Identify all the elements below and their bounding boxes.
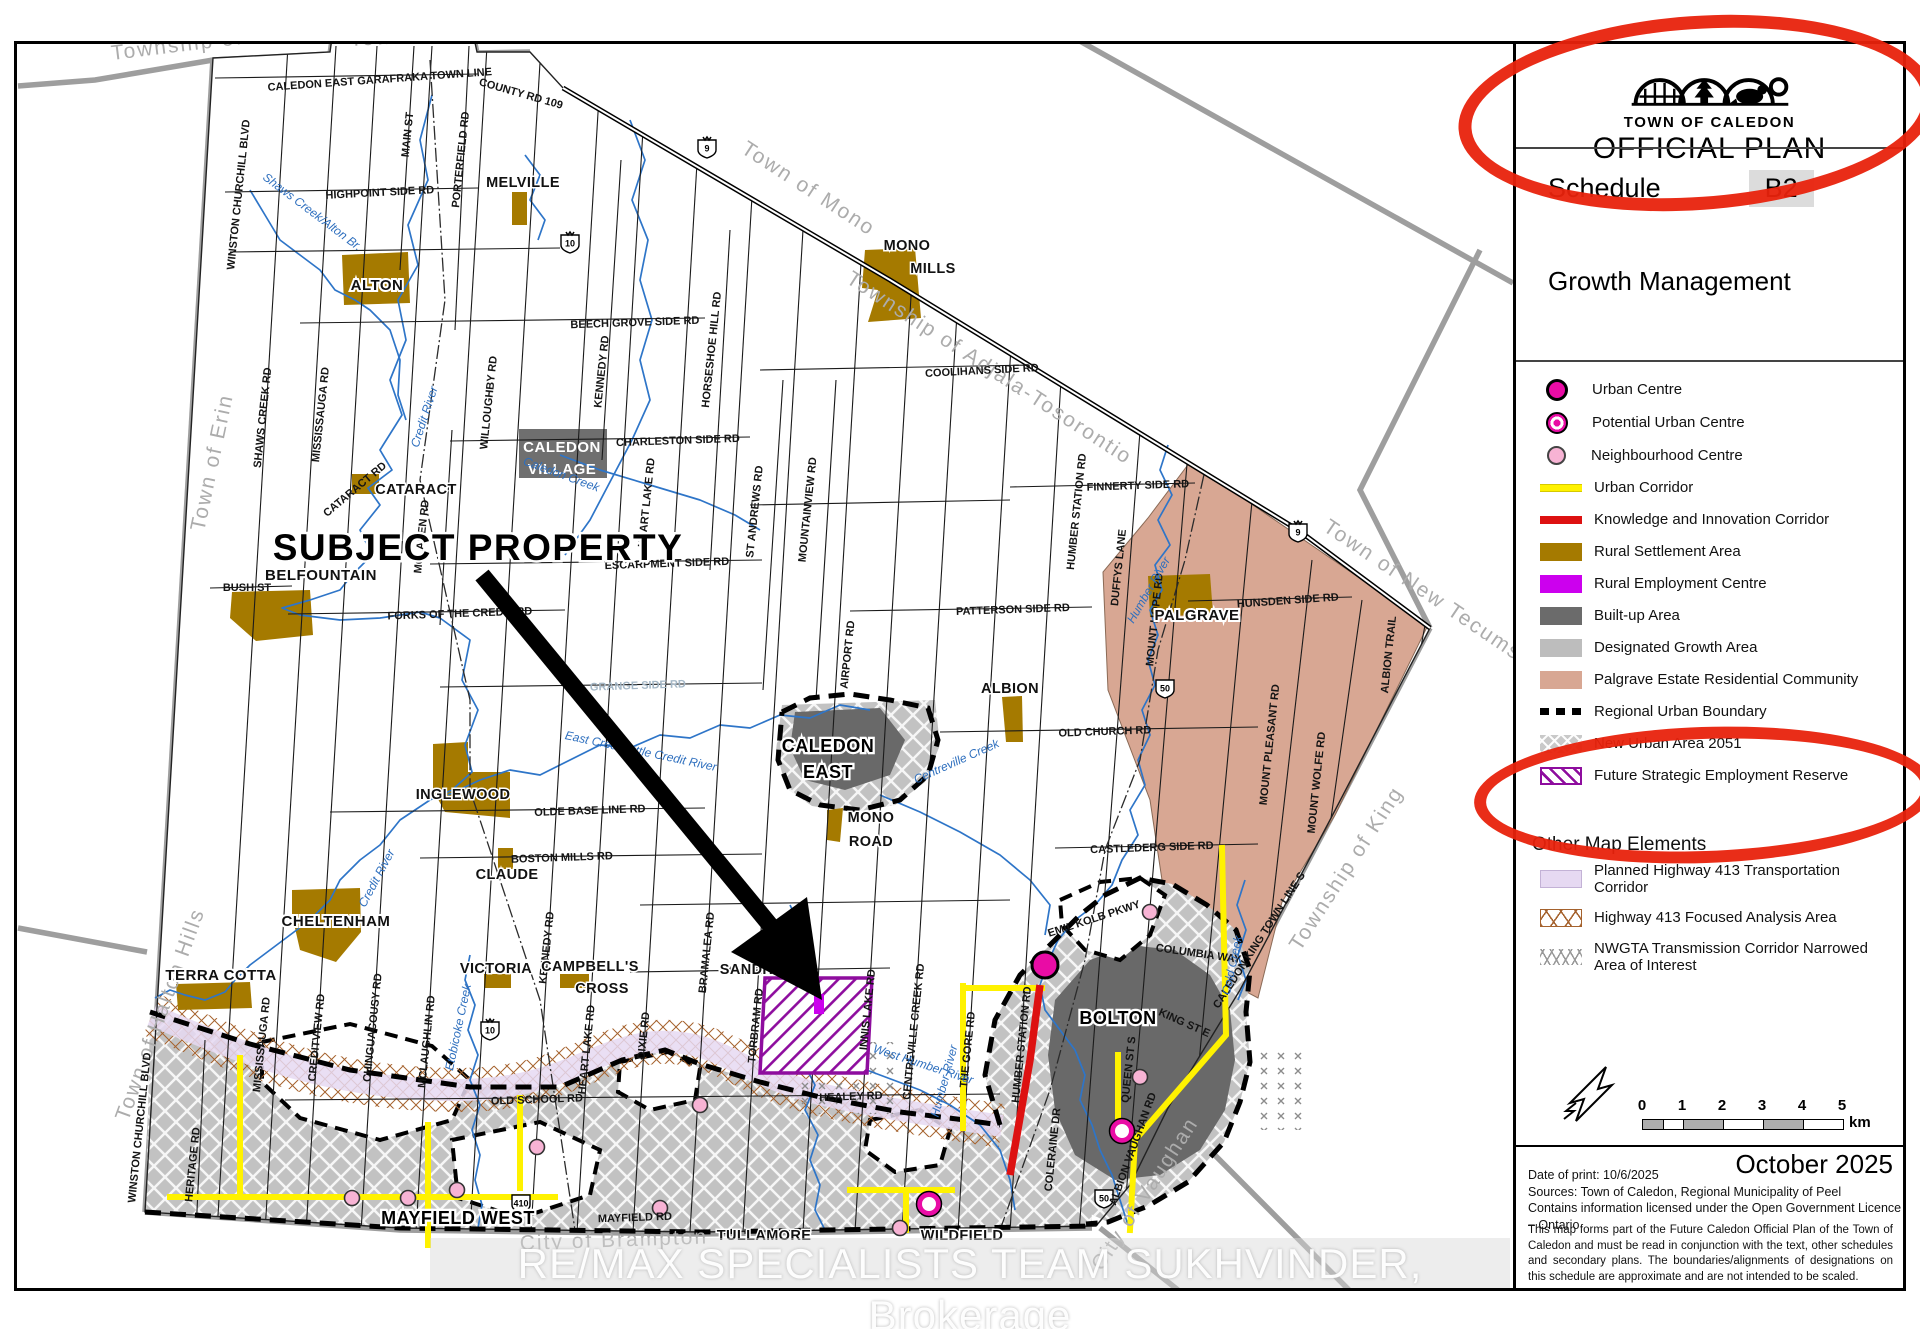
legend-item-label: Potential Urban Centre bbox=[1592, 414, 1745, 431]
legend-item: Future Strategic Employment Reserve bbox=[1540, 765, 1895, 786]
legend-header: TOWN OF CALEDON OFFICIAL PLAN bbox=[1516, 54, 1903, 166]
legend-item-label: Future Strategic Employment Reserve bbox=[1594, 767, 1848, 784]
scale-ticks: 012345 bbox=[1642, 1097, 1892, 1115]
annotation-layer: SUBJECT PROPERTY bbox=[273, 527, 684, 568]
other-map-elements-heading: Other Map Elements bbox=[1532, 834, 1706, 856]
map-label: CALEDON bbox=[523, 439, 601, 456]
rural-employment-swatch bbox=[1540, 575, 1582, 593]
legend-panel: TOWN OF CALEDON OFFICIAL PLAN Schedule B… bbox=[1513, 41, 1906, 1291]
legend-map-title: Growth Management bbox=[1548, 266, 1791, 297]
legend-plan-title: OFFICIAL PLAN bbox=[1516, 132, 1903, 166]
legend-item: Potential Urban Centre bbox=[1540, 412, 1895, 434]
neighbourhood-centre-point bbox=[893, 1221, 908, 1236]
legend-item: Rural Settlement Area bbox=[1540, 541, 1895, 562]
legend-item: Palgrave Estate Residential Community bbox=[1540, 669, 1895, 690]
legend-item: Regional Urban Boundary bbox=[1540, 701, 1895, 722]
svg-text:10: 10 bbox=[565, 239, 575, 249]
urban-centre-point bbox=[1032, 952, 1058, 978]
legend-item-label: Urban Corridor bbox=[1594, 479, 1693, 496]
svg-text:50: 50 bbox=[1160, 684, 1170, 694]
designated-growth-swatch bbox=[1540, 639, 1582, 657]
legend-item: New Urban Area 2051 bbox=[1540, 733, 1895, 754]
scale-tick: 1 bbox=[1678, 1097, 1686, 1114]
map-label: ROAD bbox=[849, 834, 893, 850]
regional-urban-boundary-swatch bbox=[1540, 708, 1582, 715]
legend-item-label: Rural Employment Centre bbox=[1594, 575, 1767, 592]
neighbourhood-centre-point bbox=[401, 1191, 416, 1206]
scale-block: 012345 km bbox=[1516, 1049, 1903, 1141]
highway-9-shield: 9 bbox=[1289, 521, 1307, 542]
legend-item-label: Highway 413 Focused Analysis Area bbox=[1594, 909, 1837, 926]
legend-item-label: Built-up Area bbox=[1594, 607, 1680, 624]
map-label: INGLEWOOD bbox=[416, 787, 511, 803]
scale-tick: 2 bbox=[1718, 1097, 1726, 1114]
page: 9910104105050 Township of East Garafraxa… bbox=[0, 0, 1920, 1329]
map-label: HEALEY RD bbox=[819, 1090, 883, 1104]
legend-item-label: NWGTA Transmission Corridor Narrowed Are… bbox=[1594, 940, 1897, 975]
divider bbox=[1516, 147, 1903, 149]
schedule-value: B2 bbox=[1749, 170, 1814, 207]
legend-item: Rural Employment Centre bbox=[1540, 573, 1895, 594]
divider bbox=[1516, 360, 1903, 362]
map-label: VICTORIA bbox=[460, 961, 532, 977]
scale-unit: km bbox=[1849, 1115, 1871, 1130]
map-label: MAYFIELD WEST bbox=[381, 1208, 535, 1228]
map-label: SUBJECT PROPERTY bbox=[273, 527, 684, 568]
map-label: EAST bbox=[803, 762, 853, 782]
highway-10-shield: 10 bbox=[561, 232, 579, 253]
legend-other-items: Planned Highway 413 Transportation Corri… bbox=[1540, 862, 1897, 985]
svg-text:410: 410 bbox=[513, 1199, 528, 1209]
legend-items: Urban CentrePotential Urban CentreNeighb… bbox=[1540, 379, 1895, 797]
hwy413-corridor-swatch bbox=[1540, 870, 1582, 888]
scale-tick: 4 bbox=[1798, 1097, 1806, 1114]
map-label: MONO bbox=[884, 238, 931, 254]
new-urban-area-swatch bbox=[1540, 735, 1582, 753]
svg-text:9: 9 bbox=[704, 144, 709, 154]
map-label: ALTON bbox=[351, 277, 404, 294]
map-label: ALBION bbox=[981, 681, 1039, 697]
built-up-swatch bbox=[1540, 607, 1582, 625]
map-label: CAMPBELL'S bbox=[541, 959, 639, 975]
north-arrow-icon bbox=[1560, 1063, 1618, 1125]
disclaimer: This map forms part of the Future Caledo… bbox=[1528, 1223, 1893, 1285]
highway-10-shield: 10 bbox=[481, 1019, 499, 1040]
legend-item: Highway 413 Focused Analysis Area bbox=[1540, 908, 1897, 929]
scale-segments bbox=[1642, 1119, 1844, 1130]
legend-item-label: Neighbourhood Centre bbox=[1591, 447, 1743, 464]
scale-tick: 3 bbox=[1758, 1097, 1766, 1114]
map-label: CLAUDE bbox=[476, 867, 539, 883]
potential-urban-centre-point bbox=[1112, 1121, 1132, 1141]
scale-tick: 0 bbox=[1638, 1097, 1646, 1114]
legend-item-label: Knowledge and Innovation Corridor bbox=[1594, 511, 1829, 528]
legend-item: Urban Corridor bbox=[1540, 477, 1895, 498]
scale-bar: 012345 km bbox=[1642, 1097, 1892, 1130]
map-label: CHELTENHAM bbox=[282, 913, 391, 930]
knowledge-corridor-swatch bbox=[1540, 516, 1582, 524]
legend-item: Planned Highway 413 Transportation Corri… bbox=[1540, 862, 1897, 897]
scale-tick: 5 bbox=[1838, 1097, 1846, 1114]
palgrave-estate-swatch bbox=[1540, 671, 1582, 689]
legend-item: Neighbourhood Centre bbox=[1540, 445, 1895, 466]
legend-item-label: Urban Centre bbox=[1592, 381, 1682, 398]
nwgta-swatch bbox=[1540, 949, 1582, 965]
legend-item: NWGTA Transmission Corridor Narrowed Are… bbox=[1540, 940, 1897, 975]
map-label: CATARACT bbox=[375, 482, 457, 498]
legend-item-label: Designated Growth Area bbox=[1594, 639, 1757, 656]
hwy413-analysis-swatch bbox=[1540, 909, 1582, 927]
map-label: WILDFIELD bbox=[921, 1228, 1004, 1244]
svg-text:10: 10 bbox=[485, 1026, 495, 1036]
map-label: MELVILLE bbox=[486, 175, 560, 191]
urban-corridor-swatch bbox=[1540, 484, 1582, 492]
map-label: MONO bbox=[848, 810, 895, 826]
neighbourhood-centre-point bbox=[530, 1140, 545, 1155]
potential-urban-centre-swatch bbox=[1546, 412, 1568, 434]
legend-item-label: Regional Urban Boundary bbox=[1594, 703, 1767, 720]
map-label: MILLS bbox=[910, 261, 956, 277]
map-label: TERRA COTTA bbox=[165, 967, 276, 984]
legend-org: TOWN OF CALEDON bbox=[1516, 114, 1903, 131]
neighbourhood-centre-point bbox=[1143, 905, 1158, 920]
legend-item: Knowledge and Innovation Corridor bbox=[1540, 509, 1895, 530]
map-label: BOLTON bbox=[1079, 1008, 1156, 1028]
potential-urban-centre-point bbox=[919, 1194, 939, 1214]
legend-item-label: Rural Settlement Area bbox=[1594, 543, 1741, 560]
map-canvas: 9910104105050 Township of East Garafraxa… bbox=[18, 4, 1555, 1291]
schedule-label: Schedule bbox=[1548, 173, 1661, 204]
map-label: CROSS bbox=[575, 981, 629, 997]
print-info-line: Date of print: 10/6/2025 bbox=[1528, 1167, 1903, 1184]
print-info-line: Sources: Town of Caledon, Regional Munic… bbox=[1528, 1184, 1903, 1201]
rural-settlement-swatch bbox=[1540, 543, 1582, 561]
neighbourhood-centre-swatch bbox=[1547, 446, 1566, 465]
map-label: PALGRAVE bbox=[1154, 607, 1239, 624]
legend-item: Built-up Area bbox=[1540, 605, 1895, 626]
town-of-caledon-logo bbox=[1625, 54, 1795, 112]
legend-item-label: Palgrave Estate Residential Community bbox=[1594, 671, 1858, 688]
legend-item-label: Planned Highway 413 Transportation Corri… bbox=[1594, 862, 1897, 897]
neighbourhood-centre-point bbox=[450, 1183, 465, 1198]
neighbourhood-centre-point bbox=[693, 1098, 708, 1113]
map-label: TULLAMORE bbox=[717, 1228, 812, 1244]
legend-item: Urban Centre bbox=[1540, 379, 1895, 401]
highway-9-shield: 9 bbox=[698, 137, 716, 158]
svg-text:9: 9 bbox=[1295, 528, 1300, 538]
map-label: CALEDON bbox=[782, 736, 875, 756]
urban-centre-swatch bbox=[1546, 379, 1568, 401]
nwgta-area bbox=[1253, 1048, 1311, 1130]
legend-item-label: New Urban Area 2051 bbox=[1594, 735, 1742, 752]
neighbourhood-centre-point bbox=[345, 1191, 360, 1206]
highway-50-shield: 50 bbox=[1156, 680, 1174, 698]
schedule-row: Schedule B2 bbox=[1548, 170, 1814, 207]
future-strategic-swatch bbox=[1540, 767, 1582, 785]
legend-item: Designated Growth Area bbox=[1540, 637, 1895, 658]
legend-footer: October 2025 Date of print: 10/6/2025Sou… bbox=[1516, 1145, 1903, 1288]
map-label: BELFOUNTAIN bbox=[265, 567, 377, 584]
